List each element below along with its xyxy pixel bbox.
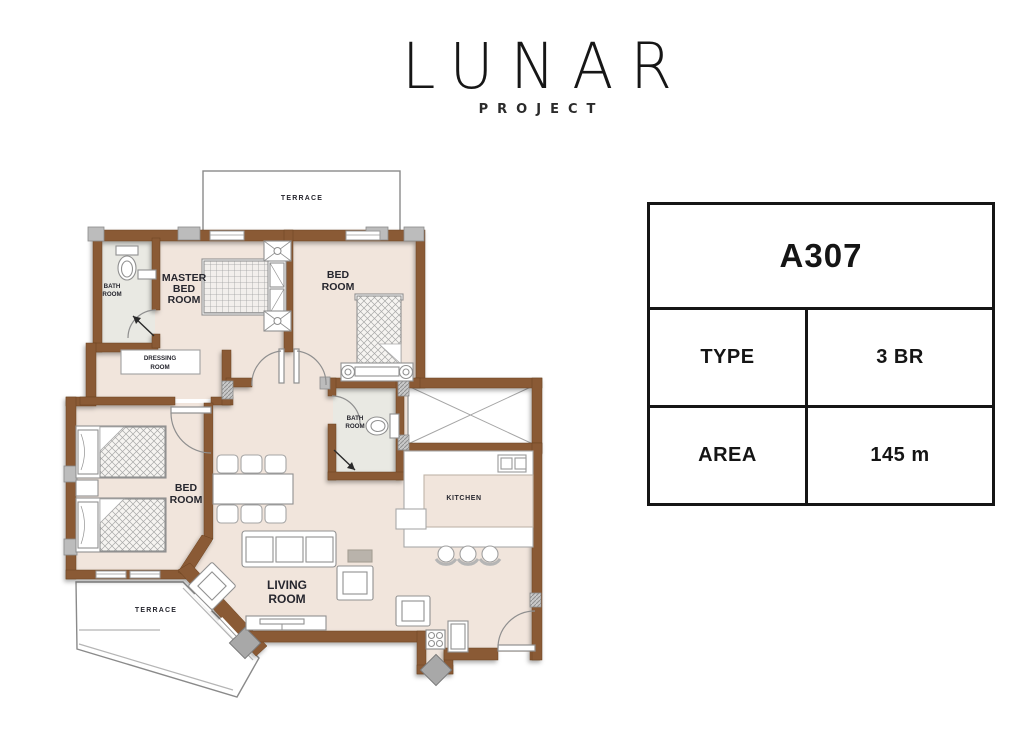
label-terrace-bottom: TERRACE [135, 607, 177, 614]
svg-text:DRESSING: DRESSING [144, 355, 177, 362]
tv-unit [246, 616, 326, 630]
unit-card: A307 TYPE 3 BR AREA 145 m [647, 202, 995, 506]
area-value: 145 m [808, 408, 992, 503]
svg-text:ROOM: ROOM [268, 592, 305, 606]
dining-set [213, 455, 293, 523]
svg-text:ROOM: ROOM [170, 494, 203, 506]
bed-3a [76, 426, 166, 478]
unit-code: A307 [650, 205, 992, 310]
type-label: TYPE [650, 310, 808, 405]
sofa [242, 531, 336, 567]
area-label: AREA [650, 408, 808, 503]
master-bed [202, 259, 286, 315]
side-chair [337, 566, 373, 600]
shaft [408, 386, 533, 444]
type-value: 3 BR [808, 310, 992, 405]
svg-text:ROOM: ROOM [102, 291, 121, 298]
rug [348, 550, 372, 562]
svg-text:LIVING: LIVING [267, 578, 307, 592]
svg-text:BATH: BATH [104, 283, 121, 290]
table-row: TYPE 3 BR [650, 310, 992, 405]
stove [426, 630, 445, 649]
nightstand [76, 480, 98, 496]
svg-text:ROOM: ROOM [345, 423, 364, 430]
svg-text:BED: BED [327, 269, 350, 281]
page: LUNAR PROJECT [0, 0, 1032, 732]
table-row: AREA 145 m [650, 405, 992, 503]
svg-text:ROOM: ROOM [322, 281, 355, 293]
bed-3b [76, 498, 166, 552]
svg-text:ROOM: ROOM [168, 294, 201, 306]
svg-text:BATH: BATH [347, 415, 364, 422]
kitchen-cabinet [448, 621, 468, 652]
label-terrace-top: TERRACE [281, 195, 323, 202]
bar-stools [436, 546, 500, 564]
svg-text:ROOM: ROOM [150, 364, 169, 371]
terrace-top-area [203, 171, 400, 235]
svg-text:BED: BED [175, 482, 198, 494]
side-chair-2 [396, 596, 430, 626]
label-kitchen: KITCHEN [446, 495, 481, 502]
